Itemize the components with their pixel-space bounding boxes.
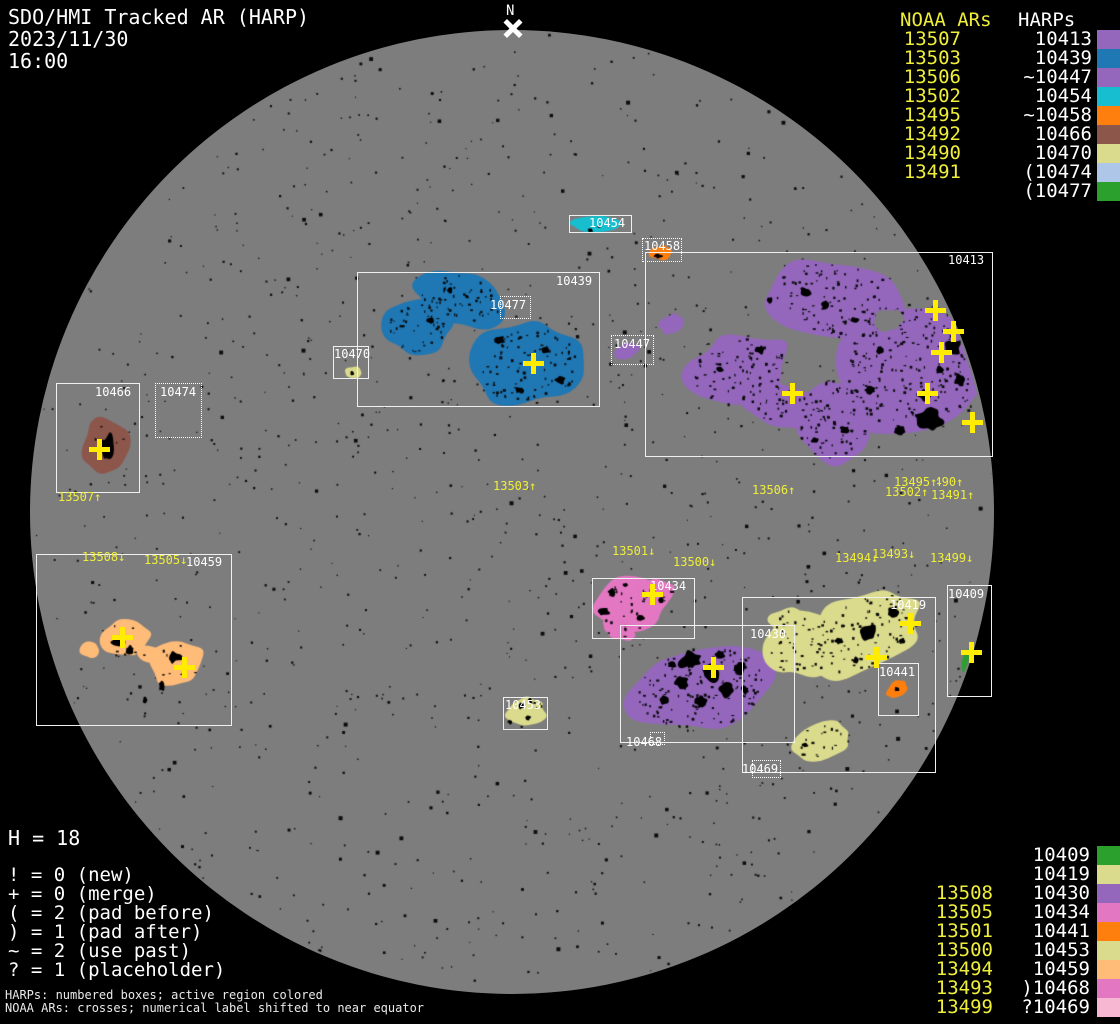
harp-color-swatch [1097,106,1120,125]
harp-color-swatch [1097,941,1120,960]
noaa-cross-marker [703,657,724,678]
harp-box-label-10466: 10466 [95,386,131,398]
noaa-cross-marker [523,353,544,374]
north-pole-x-marker [502,18,524,40]
harp-color-swatch [1097,884,1120,903]
legend-row-bottom-8: 13499?10469 [933,998,1120,1017]
harp-box-label-10470: 10470 [334,348,370,360]
legend-row-bottom-0: 10409 [933,846,1120,865]
sdo-hmi-harp-plot: 1045410458104131043910477104701044710466… [0,0,1120,1024]
harp-color-swatch [1097,68,1120,87]
harp-box-label-10413: 10413 [948,254,984,266]
harp-box-10459 [36,554,232,726]
harp-box-10439 [357,272,600,407]
legend-top: 1350710413135031043913506~10447135021045… [901,30,1120,201]
harp-box-label-10459: 10459 [186,556,222,568]
noaa-ar-number: 13491 [901,163,961,182]
noaa-equator-label-13502: 13502↑ [885,486,928,498]
harp-color-swatch [1097,998,1120,1017]
date-label: 2023/11/30 [8,27,128,51]
harp-box-label-10453: 10453 [505,699,541,711]
harp-color-swatch [1097,87,1120,106]
harp-box-label-10454: 10454 [589,217,625,229]
harp-color-swatch [1097,49,1120,68]
noaa-cross-marker [961,642,982,663]
noaa-equator-label-13506: 13506↑ [752,484,795,496]
harp-color-swatch [1097,182,1120,201]
app-title: SDO/HMI Tracked AR (HARP) [8,5,309,29]
harp-box-label-10474: 10474 [160,386,196,398]
harp-box-label-10477: 10477 [490,299,526,311]
harp-box-label-10419: 10419 [890,599,926,611]
harp-count-label: H = 18 [8,828,80,848]
harp-color-swatch [1097,979,1120,998]
legend-bottom: 1040910419135081043013505104341350110441… [933,846,1120,1017]
footer-caption: HARPs: numbered boxes; active region col… [5,989,424,1015]
noaa-equator-label-13493: 13493↓ [872,548,915,560]
harp-box-10409 [947,585,992,697]
noaa-cross-marker [962,412,983,433]
noaa-equator-label-13507: 13507↑ [58,491,101,503]
harp-box-label-10447: 10447 [614,338,650,350]
noaa-equator-label-13501: 13501↓ [612,545,655,557]
noaa-cross-marker [174,657,195,678]
time-label: 16:00 [8,49,68,73]
harp-color-swatch [1097,846,1120,865]
legend-row-top-8: (10477 [901,182,1120,201]
harp-color-swatch [1097,903,1120,922]
noaa-cross-marker [925,300,946,321]
harp-color-swatch [1097,865,1120,884]
harp-box-label-10409: 10409 [948,588,984,600]
noaa-cross-marker [89,439,110,460]
noaa-ar-number: 13499 [933,998,993,1017]
noaa-equator-label-13491: 13491↑ [931,489,974,501]
harp-color-swatch [1097,125,1120,144]
harp-box-10466 [56,383,140,493]
noaa-equator-label-13500: 13500↓ [673,556,716,568]
noaa-equator-label-13499: 13499↓ [930,552,973,564]
noaa-cross-marker [931,342,952,363]
harp-color-swatch [1097,960,1120,979]
noaa-cross-marker [900,613,921,634]
noaa-cross-marker [112,627,133,648]
harp-box-label-10468: 10468 [626,736,662,748]
harp-box-label-10469: 10469 [742,763,778,775]
footer-line2: NOAA ARs: crosses; numerical label shift… [5,1001,424,1015]
harp-number: ?10469 [1006,998,1090,1017]
noaa-cross-marker [642,584,663,605]
harp-number: (10477 [1008,182,1092,201]
harp-color-swatch [1097,30,1120,49]
harp-color-swatch [1097,144,1120,163]
plot-title-block: SDO/HMI Tracked AR (HARP) 2023/11/30 16:… [8,6,309,72]
harp-box-label-10458: 10458 [644,240,680,252]
noaa-equator-label-13508: 13508↓ [82,551,125,563]
north-pole-label: N [506,4,514,18]
noaa-cross-marker [943,321,964,342]
flag-line-5: ? = 1 (placeholder) [8,961,225,980]
noaa-cross-marker [917,383,938,404]
harp-box-label-10439: 10439 [556,275,592,287]
flag-legend: ! = 0 (new)+ = 0 (merge)( = 2 (pad befor… [8,866,225,980]
noaa-cross-marker [866,647,887,668]
harp-color-swatch [1097,922,1120,941]
noaa-cross-marker [782,383,803,404]
noaa-equator-label-13505: 13505↓ [144,554,187,566]
noaa-equator-label-13503: 13503↑ [493,480,536,492]
harp-color-swatch [1097,163,1120,182]
footer-line1: HARPs: numbered boxes; active region col… [5,988,323,1002]
